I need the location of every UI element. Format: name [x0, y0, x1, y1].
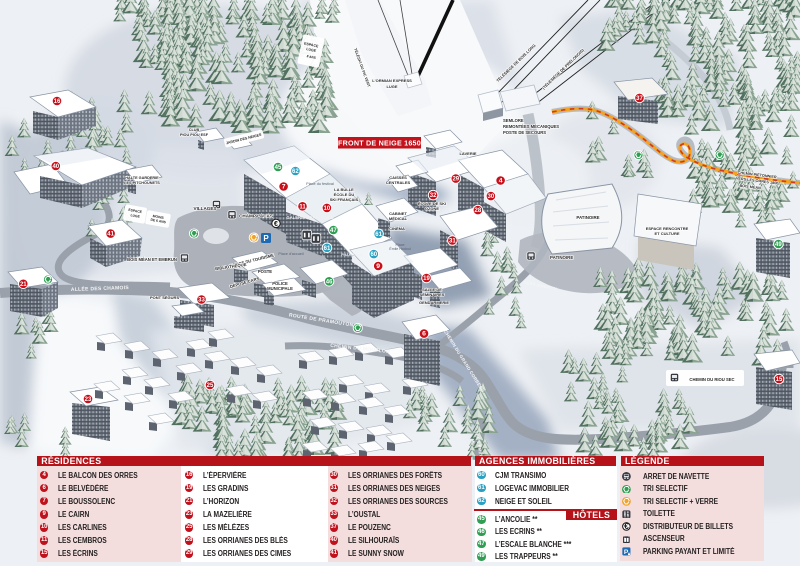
svg-text:Place d'accueil: Place d'accueil [278, 252, 303, 256]
svg-text:VILLAGES: VILLAGES [194, 206, 217, 211]
svg-text:SEMLORE: SEMLORE [503, 118, 524, 123]
svg-text:49: 49 [775, 242, 782, 248]
svg-text:SKI FRANÇAIS: SKI FRANÇAIS [330, 197, 359, 202]
svg-text:7: 7 [282, 184, 286, 191]
svg-text:32: 32 [430, 193, 437, 199]
svg-text:CHEMIN DU RIOU SEC: CHEMIN DU RIOU SEC [689, 377, 734, 382]
svg-text:LES PITCHOUNETS: LES PITCHOUNETS [124, 181, 160, 185]
svg-text:11: 11 [299, 204, 306, 210]
svg-text:PIOU PIOU ESF: PIOU PIOU ESF [180, 133, 209, 137]
svg-text:L'ORMIAN EXPRESS: L'ORMIAN EXPRESS [372, 78, 412, 83]
svg-text:FRONT DE NEIGE 1650: FRONT DE NEIGE 1650 [338, 139, 421, 148]
svg-text:37: 37 [636, 96, 643, 102]
svg-text:19: 19 [423, 276, 430, 282]
svg-text:6: 6 [422, 331, 426, 338]
svg-text:GENDARMERIE: GENDARMERIE [419, 300, 449, 305]
svg-text:46: 46 [326, 279, 333, 285]
svg-text:60: 60 [370, 252, 377, 258]
svg-text:21: 21 [20, 282, 27, 288]
svg-text:PONT SÉGURS: PONT SÉGURS [150, 295, 179, 300]
svg-text:GALERIE MARCHANDE: GALERIE MARCHANDE [286, 215, 333, 220]
svg-text:4: 4 [499, 178, 503, 185]
svg-text:15: 15 [776, 377, 783, 383]
svg-text:BOIS MÉAN ET EMBRUN: BOIS MÉAN ET EMBRUN [127, 257, 177, 262]
svg-text:POSTE DE SECOURS: POSTE DE SECOURS [503, 130, 546, 135]
svg-text:33: 33 [198, 298, 205, 304]
svg-text:€: € [624, 522, 629, 531]
svg-text:61: 61 [375, 232, 382, 238]
svg-text:POSTE: POSTE [258, 269, 272, 274]
svg-text:29: 29 [452, 177, 459, 183]
svg-text:PATINOIRE: PATINOIRE [576, 215, 599, 220]
svg-text:31: 31 [449, 239, 456, 245]
svg-text:28: 28 [475, 208, 482, 214]
svg-text:MÉDICAL: MÉDICAL [389, 216, 408, 221]
svg-text:LAVERIE: LAVERIE [459, 151, 476, 156]
svg-text:€: € [274, 221, 278, 228]
svg-text:CINÉMA: CINÉMA [389, 226, 405, 231]
svg-text:OZONE: OZONE [425, 206, 440, 211]
svg-text:ET CULTURE: ET CULTURE [654, 231, 679, 236]
svg-text:62: 62 [292, 169, 299, 175]
svg-text:LUGE: LUGE [386, 84, 397, 89]
svg-text:PATINOIRE: PATINOIRE [550, 255, 573, 260]
svg-text:47: 47 [330, 228, 337, 234]
svg-text:45: 45 [275, 165, 282, 171]
svg-text:CLUB: CLUB [189, 128, 200, 132]
svg-text:10: 10 [324, 206, 331, 212]
svg-text:16: 16 [54, 99, 61, 105]
svg-text:61: 61 [324, 246, 331, 252]
svg-text:HALTE GARDERIE: HALTE GARDERIE [125, 176, 159, 180]
svg-text:REMONTÉES MÉCANIQUES: REMONTÉES MÉCANIQUES [503, 124, 559, 129]
svg-text:9: 9 [376, 263, 380, 270]
svg-text:MUNICIPALE: MUNICIPALE [267, 286, 293, 291]
svg-text:30: 30 [488, 194, 495, 200]
svg-text:25: 25 [207, 383, 214, 389]
svg-text:Émile Hodoul: Émile Hodoul [389, 246, 411, 251]
svg-text:P: P [263, 234, 269, 243]
svg-text:SÉMINAIRES: SÉMINAIRES [420, 292, 445, 297]
svg-text:Place du festival: Place du festival [306, 182, 334, 186]
svg-text:CHAMP LACAS: CHAMP LACAS [239, 214, 273, 219]
svg-text:CENTRALES: CENTRALES [386, 180, 411, 185]
svg-text:23: 23 [85, 397, 92, 403]
svg-text:41: 41 [107, 232, 114, 238]
svg-text:PHARMACIE: PHARMACIE [341, 253, 363, 257]
svg-text:40: 40 [52, 164, 59, 170]
